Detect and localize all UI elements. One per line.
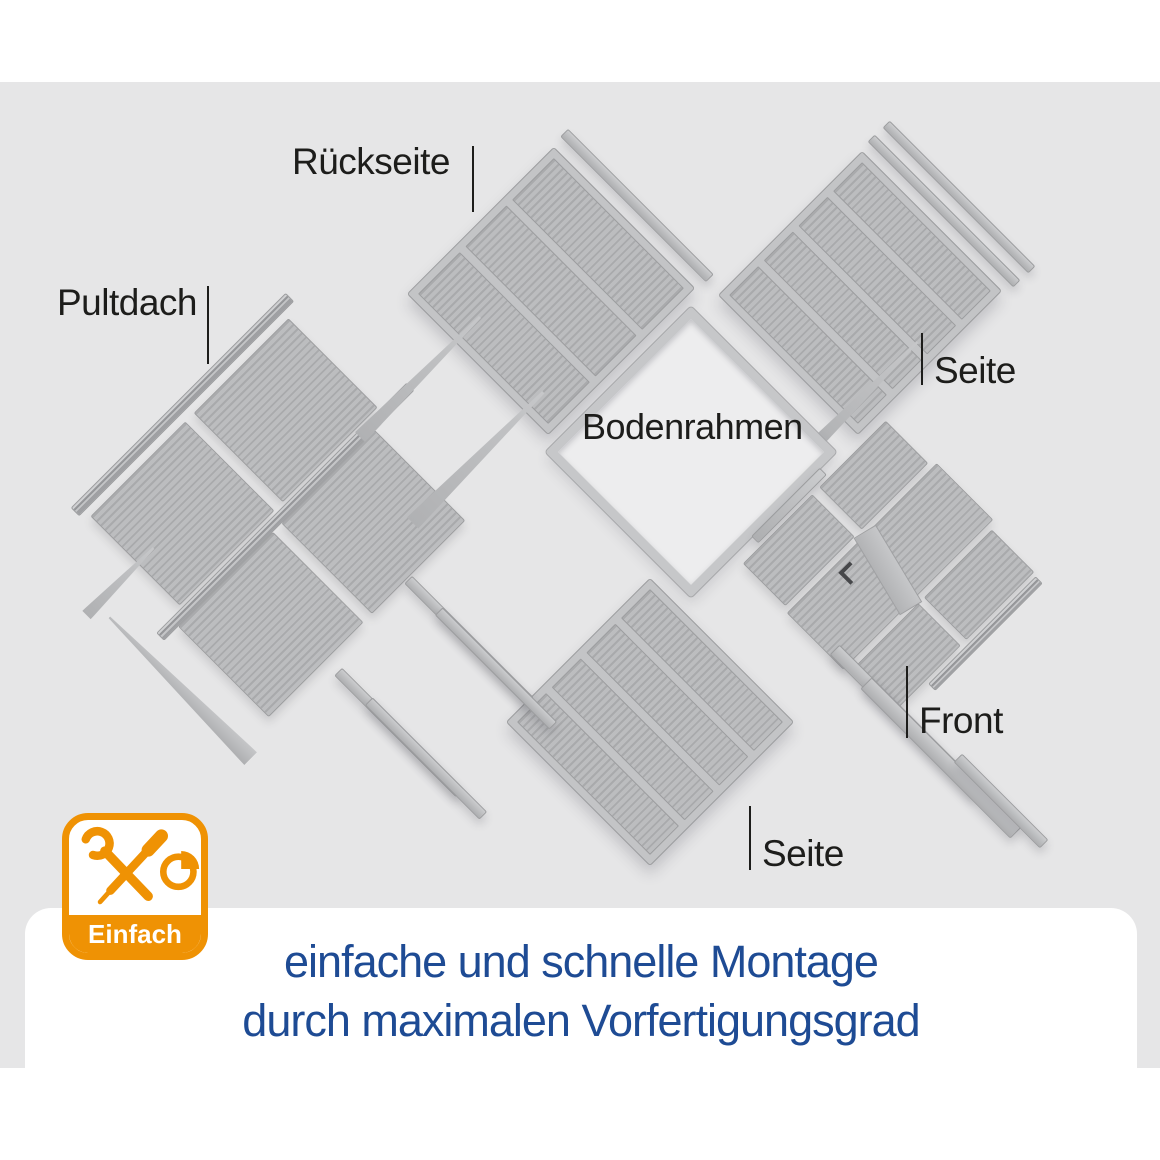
label-pultdach: Pultdach: [57, 284, 197, 321]
label-seite-top: Seite: [934, 352, 1016, 389]
badge-label: Einfach: [88, 919, 182, 950]
label-tick: [472, 146, 474, 212]
label-tick: [749, 806, 751, 870]
badge-label-strip: Einfach: [69, 915, 201, 953]
label-seite-bottom: Seite: [762, 835, 844, 872]
caption-line-2: durch maximalen Vorfertigungsgrad: [25, 991, 1137, 1050]
label-bodenrahmen: Bodenrahmen: [582, 409, 803, 445]
tools-and-clock-icon: [69, 820, 201, 916]
label-tick: [921, 333, 923, 385]
door-handle: [838, 561, 861, 584]
label-front: Front: [919, 702, 1003, 739]
label-tick: [906, 666, 908, 738]
label-tick: [207, 286, 209, 364]
product-diagram-page: Rückseite Pultdach Seite Bodenrahmen Fro…: [0, 0, 1160, 1160]
door-brace: [854, 525, 923, 616]
einfach-badge: Einfach: [62, 813, 208, 960]
label-rueckseite: Rückseite: [292, 143, 450, 180]
